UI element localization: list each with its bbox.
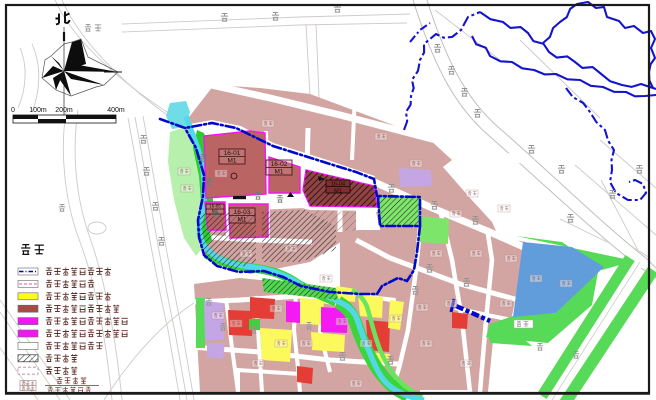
svg-text:M1: M1 — [237, 216, 246, 223]
svg-text:M1: M1 — [227, 157, 236, 164]
svg-text:M1: M1 — [334, 188, 342, 194]
svg-text:400m: 400m — [107, 107, 125, 114]
svg-text:16-02: 16-02 — [271, 161, 288, 168]
svg-text:16-03: 16-03 — [234, 209, 251, 216]
svg-text:16-01: 16-01 — [224, 150, 241, 157]
svg-text:200m: 200m — [55, 107, 73, 114]
svg-text:16-04: 16-04 — [331, 181, 345, 187]
svg-text:M1: M1 — [274, 168, 283, 175]
svg-text:0: 0 — [11, 107, 15, 114]
svg-text:100m: 100m — [29, 107, 47, 114]
